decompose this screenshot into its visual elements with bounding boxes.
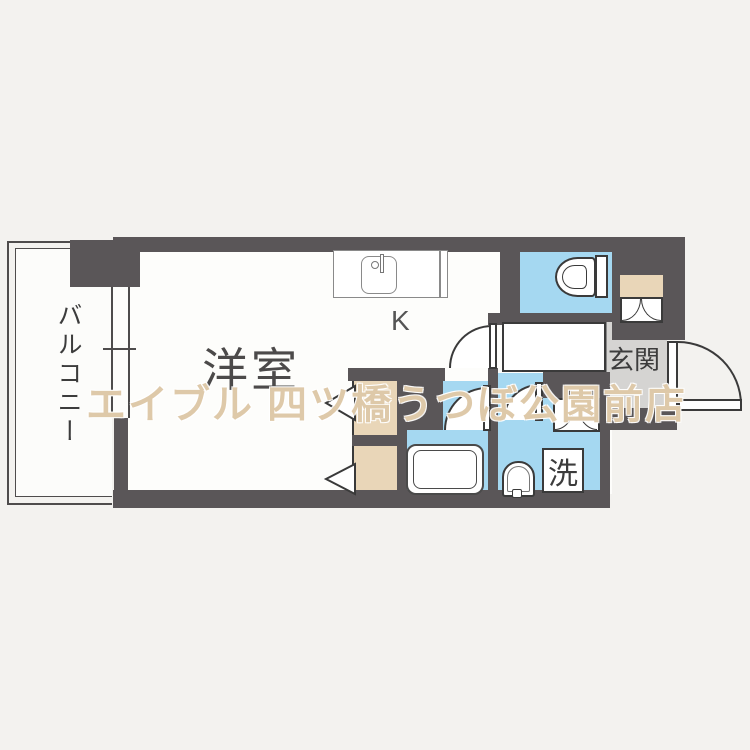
balcony-label: バルコニー [50,302,86,447]
kitchen-counter-divider [439,250,441,298]
faucet-handle-icon [380,254,384,273]
wall-top-left-block [70,240,140,287]
wall-closet-divider [352,435,397,446]
entry-door-leaf [678,399,742,411]
kitchen-label: K [391,305,410,337]
floor-plan: 洗 バルコニー 洋室 K 玄関 エイブル 四ツ橋うつぼ公園前店 [0,0,750,750]
kitchen-sink [361,256,397,294]
wall-kitchen-toilet [500,248,520,322]
wall-under-toilet [520,313,612,322]
watermark: エイブル 四ツ橋うつぼ公園前店 [86,372,687,430]
laundry-label: 洗 [548,449,578,493]
washbasin-drain [512,489,522,498]
hallway [502,322,606,372]
faucet-icon [371,261,379,269]
entry-door-arc [678,341,742,405]
toilet-bowl-inner [562,265,587,289]
wall-bottom [113,490,610,508]
window-tick [103,348,136,350]
kitchen-door-leaf [489,323,497,369]
toilet-tank [595,255,608,298]
shoe-cabinet [620,275,663,297]
bathtub-inner [413,450,477,489]
washing-machine-box: 洗 [542,448,584,493]
